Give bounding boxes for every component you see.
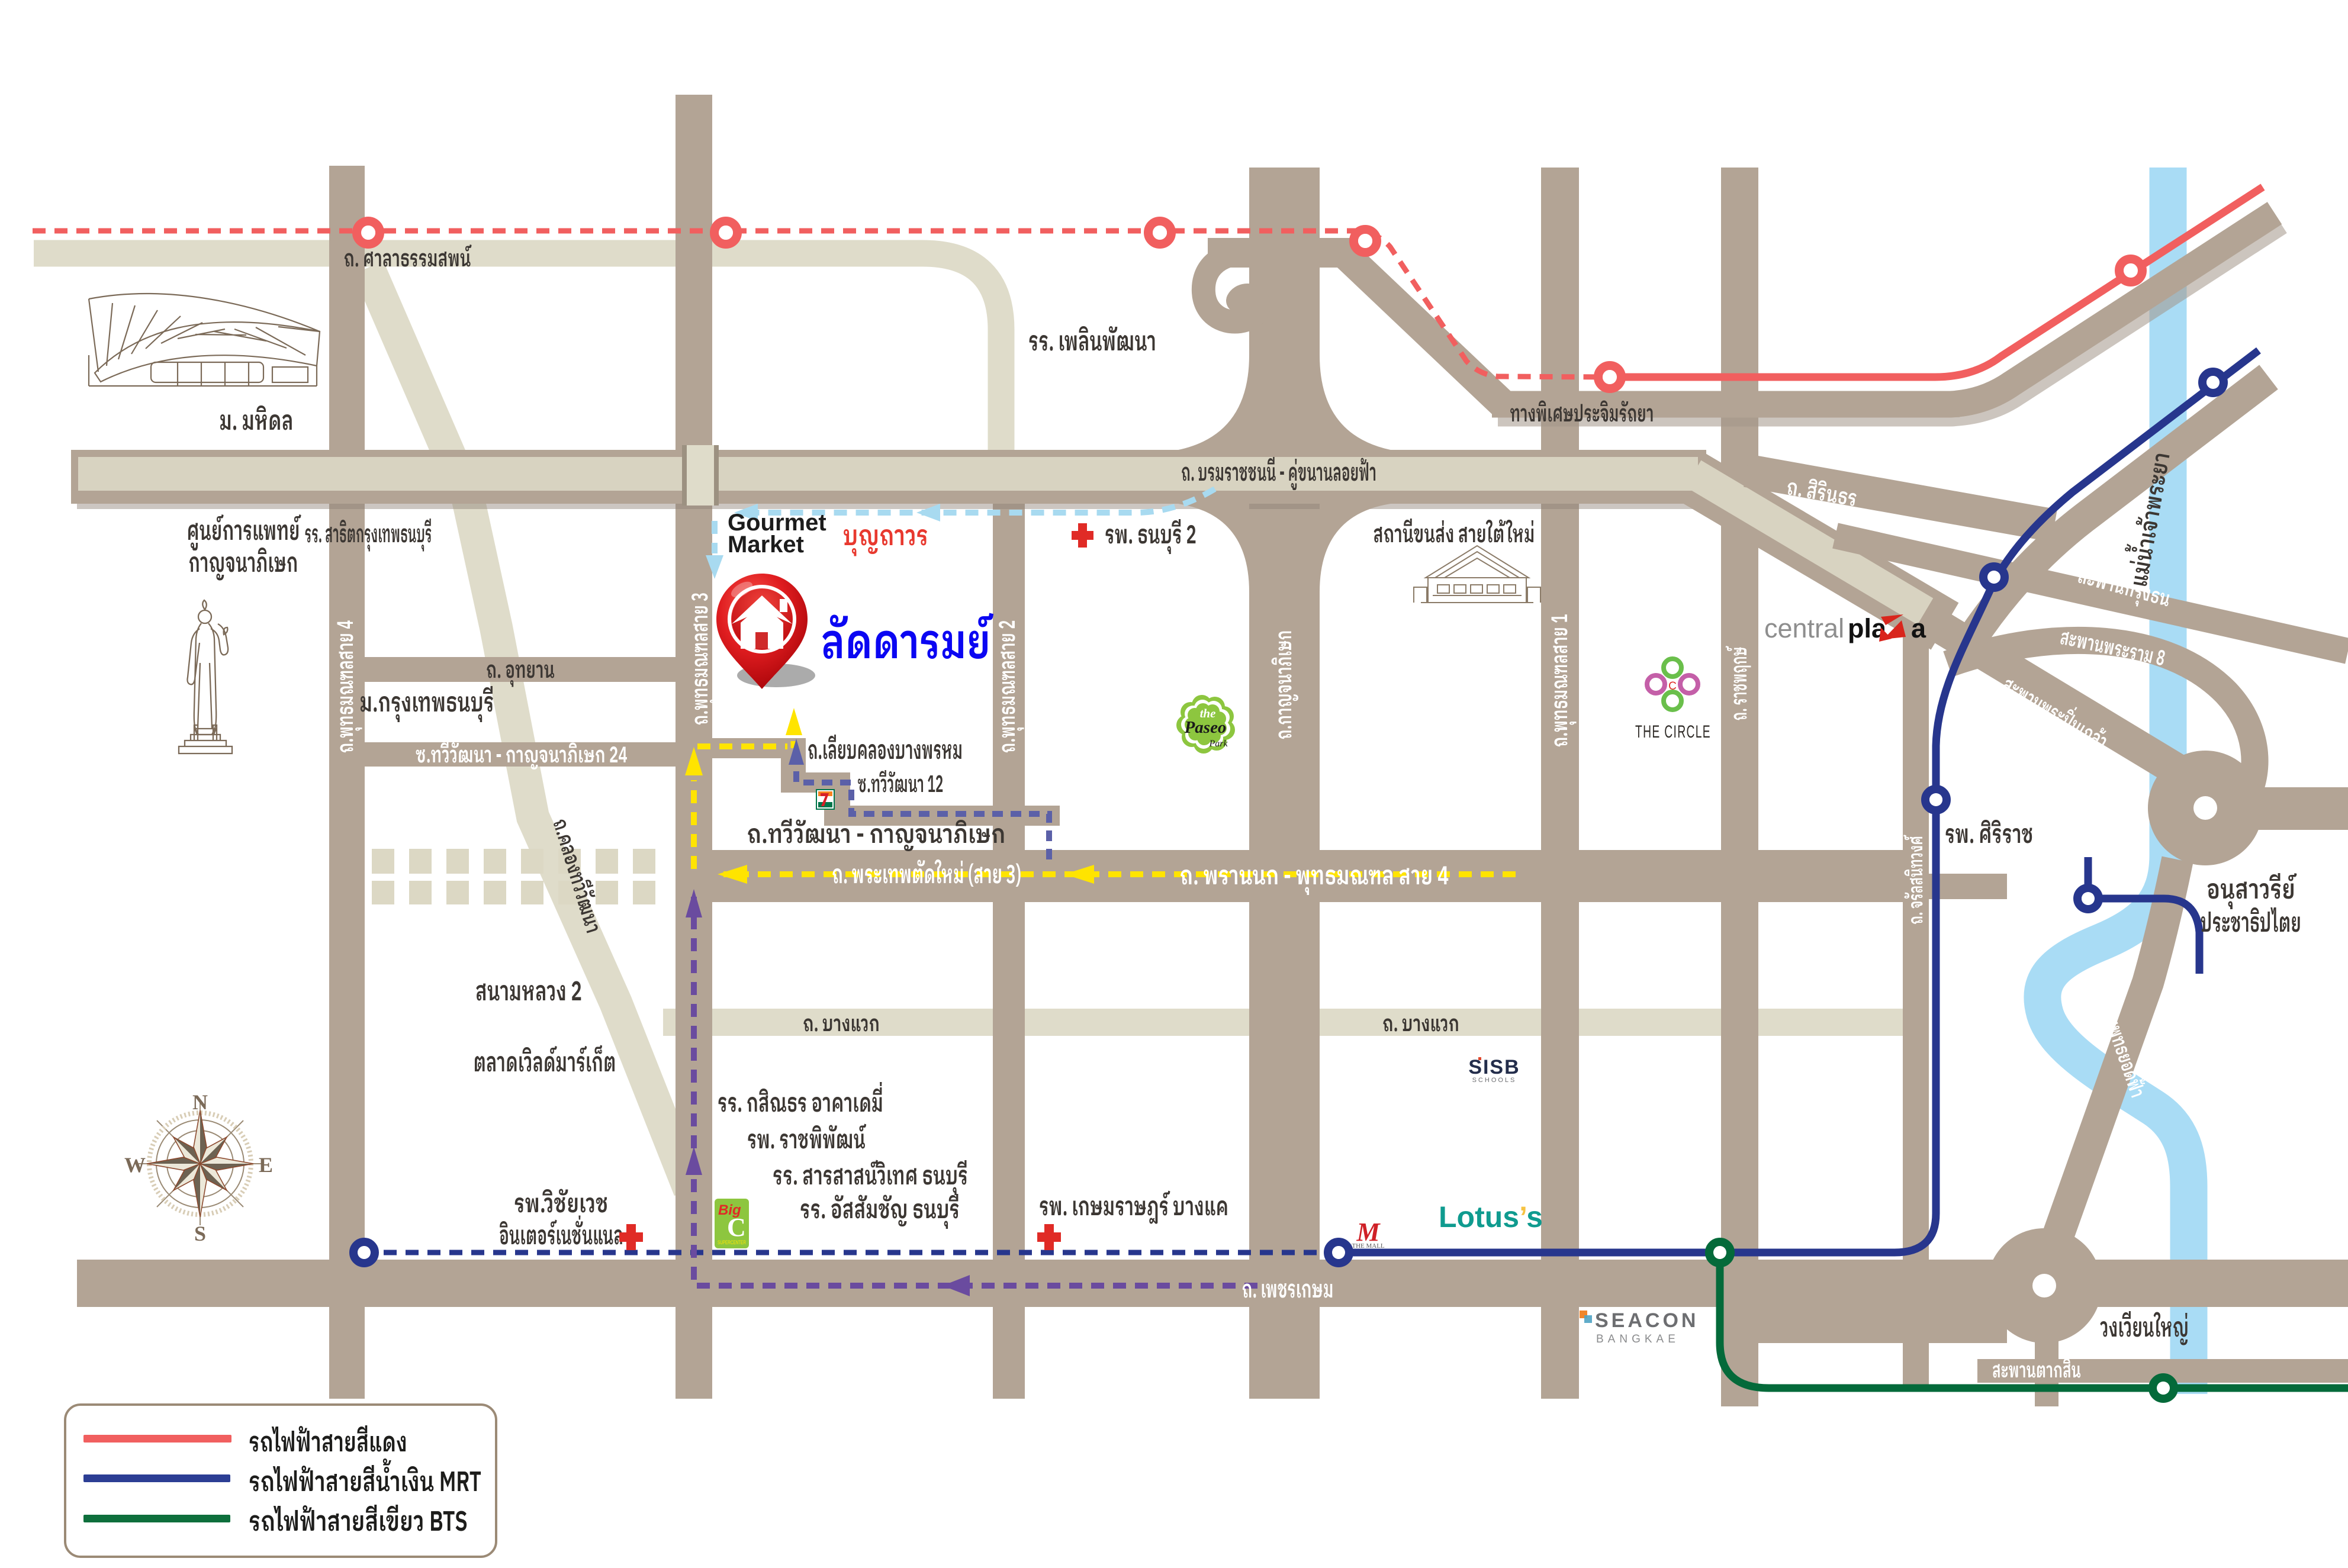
svg-text:สะพานตากสิน: สะพานตากสิน: [1992, 1354, 2081, 1389]
svg-text:Paseo: Paseo: [1184, 718, 1227, 737]
svg-text:SEACON: SEACON: [1595, 1309, 1699, 1332]
svg-text:รร. เพลินพัฒนา: รร. เพลินพัฒนา: [1028, 320, 1156, 365]
svg-text:รร. อัสสัมชัญ ธนบุรี: รร. อัสสัมชัญ ธนบุรี: [800, 1190, 960, 1232]
svg-text:สนามหลวง 2: สนามหลวง 2: [475, 970, 582, 1015]
svg-text:รพ. เกษมราษฎร์ บางแค: รพ. เกษมราษฎร์ บางแค: [1039, 1187, 1228, 1229]
svg-text:ม.กรุงเทพธนบุรี: ม.กรุงเทพธนบุรี: [360, 681, 494, 726]
svg-text:กาญจนาภิเษก: กาญจนาภิเษก: [189, 542, 298, 587]
svg-text:รถไฟฟ้าสายสีเขียว BTS: รถไฟฟ้าสายสีเขียว BTS: [249, 1501, 468, 1546]
svg-text:S: S: [194, 1222, 206, 1245]
svg-text:ถ. บางแวก: ถ. บางแวก: [1382, 1007, 1459, 1044]
svg-text:รร. สาธิตกรุงเทพธนบุรี: รร. สาธิตกรุงเทพธนบุรี: [305, 515, 432, 556]
svg-text:C: C: [1668, 680, 1677, 693]
svg-text:ถ. พระเทพตัดใหม่ (สาย 3): ถ. พระเทพตัดใหม่ (สาย 3): [832, 855, 1021, 897]
svg-text:THE MALL: THE MALL: [1352, 1242, 1385, 1250]
svg-text:รพ. ศิริราช: รพ. ศิริราช: [1945, 814, 2034, 857]
svg-text:a: a: [1911, 613, 1926, 643]
svg-text:ตลาดเวิลด์มาร์เก็ต: ตลาดเวิลด์มาร์เก็ต: [474, 1041, 616, 1086]
svg-text:ซ.ทวีวัฒนา - กาญจนาภิเษก 24: ซ.ทวีวัฒนา - กาญจนาภิเษก 24: [416, 738, 628, 775]
svg-text:รพ. ธนบุรี 2: รพ. ธนบุรี 2: [1105, 515, 1196, 558]
svg-text:ถ. บรมราชชนนี - คู่ขนานลอยฟ้า: ถ. บรมราชชนนี - คู่ขนานลอยฟ้า: [1181, 453, 1376, 494]
svg-text:ลัดดารมย์: ลัดดารมย์: [821, 604, 994, 684]
svg-text:SUPERCENTER: SUPERCENTER: [718, 1239, 746, 1245]
svg-text:SCHOOLS: SCHOOLS: [1472, 1077, 1517, 1084]
svg-text:อินเตอร์เนชั่นแนล: อินเตอร์เนชั่นแนล: [499, 1215, 623, 1258]
svg-text:central: central: [1764, 613, 1844, 643]
svg-text:N: N: [192, 1090, 208, 1114]
svg-text:ถ.พุทธมณฑลสาย 1: ถ.พุทธมณฑลสาย 1: [1543, 614, 1580, 748]
svg-text:ถ. ราชพฤกษ์: ถ. ราชพฤกษ์: [1722, 646, 1759, 720]
svg-text:ประชาธิปไตย: ประชาธิปไตย: [2201, 901, 2301, 946]
svg-text:ถ. บางแวก: ถ. บางแวก: [803, 1007, 880, 1044]
svg-text:ถ. เพชรเกษม: ถ. เพชรเกษม: [1242, 1270, 1334, 1311]
svg-text:C: C: [727, 1213, 746, 1242]
svg-text:ถ. อุทยาน: ถ. อุทยาน: [486, 652, 555, 691]
svg-text:Lotus’s: Lotus’s: [1439, 1200, 1543, 1234]
svg-text:รถไฟฟ้าสายสีแดง: รถไฟฟ้าสายสีแดง: [249, 1421, 407, 1467]
svg-text:รร. กสิณธร อาคาเดมี่: รร. กสิณธร อาคาเดมี่: [718, 1082, 883, 1126]
svg-text:วงเวียนใหญ่: วงเวียนใหญ่: [2100, 1306, 2189, 1351]
svg-text:ถ. พรานนก - พุทธมณฑล สาย 4: ถ. พรานนก - พุทธมณฑล สาย 4: [1180, 856, 1449, 899]
svg-text:ซ.ทวีวัฒนา 12: ซ.ทวีวัฒนา 12: [858, 766, 944, 805]
svg-text:E: E: [259, 1153, 273, 1177]
svg-text:ถ.พุทธมณฑลสาย 2: ถ.พุทธมณฑลสาย 2: [990, 620, 1027, 754]
svg-text:ทางพิเศษประจิมรัถยา: ทางพิเศษประจิมรัถยา: [1510, 395, 1654, 434]
svg-text:สถานีขนส่ง สายใต้ใหม่: สถานีขนส่ง สายใต้ใหม่: [1374, 515, 1535, 556]
svg-text:BANGKAE: BANGKAE: [1596, 1333, 1680, 1345]
svg-text:บุญถาวร: บุญถาวร: [843, 513, 928, 561]
svg-text:ถ. จรัลสนิทวงศ์: ถ. จรัลสนิทวงศ์: [1900, 835, 1934, 925]
svg-text:W: W: [124, 1153, 146, 1177]
svg-text:ถ.ทวีวัฒนา - กาญจนาภิเษก: ถ.ทวีวัฒนา - กาญจนาภิเษก: [747, 814, 1006, 857]
svg-text:THE CIRCLE: THE CIRCLE: [1635, 722, 1711, 742]
svg-text:ถ. ศาลาธรรมสพน์: ถ. ศาลาธรรมสพน์: [344, 240, 472, 279]
svg-text:ถ.กาญจนาภิเษก: ถ.กาญจนาภิเษก: [1267, 630, 1304, 740]
svg-text:ม. มหิดล: ม. มหิดล: [220, 400, 294, 445]
svg-text:รถไฟฟ้าสายสีน้ำเงิน MRT: รถไฟฟ้าสายสีน้ำเงิน MRT: [249, 1458, 481, 1506]
svg-text:Market: Market: [728, 532, 804, 558]
svg-text:Park: Park: [1208, 739, 1228, 749]
svg-text:ถ.พุทธมณฑลสาย 3: ถ.พุทธมณฑลสาย 3: [683, 593, 720, 726]
svg-text:SISB: SISB: [1468, 1056, 1520, 1078]
